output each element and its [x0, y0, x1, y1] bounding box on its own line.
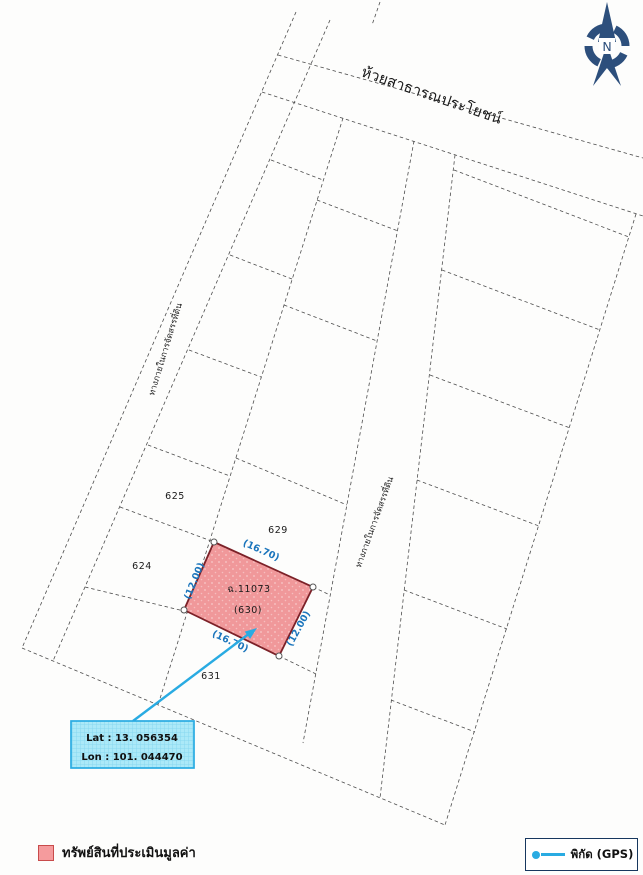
- compass-rose: N: [582, 2, 631, 86]
- corner-marker: [310, 584, 316, 590]
- gps-callout: Lat : 13. 056354 Lon : 101. 044470: [71, 624, 260, 768]
- compass-north-needle: [598, 2, 616, 42]
- parcel-line: [404, 590, 507, 629]
- property-legend-label: ทรัพย์สินที่ประเมินมูลค่า: [62, 842, 196, 863]
- parcel-line: [417, 480, 539, 526]
- parcel-line: [236, 458, 347, 505]
- parcel-line: [189, 350, 261, 377]
- parcel-line: [317, 200, 398, 231]
- gps-lon-value: Lon : 101. 044470: [81, 752, 182, 763]
- parcel-line: [284, 305, 377, 341]
- parcel-grid-lines: [85, 160, 629, 732]
- gps-lat-value: Lat : 13. 056354: [86, 733, 178, 744]
- parcel-label-629: 629: [268, 525, 288, 536]
- parcel-line: [271, 160, 323, 180]
- property-swatch: [38, 845, 54, 861]
- parcel-line: [442, 270, 600, 330]
- parcel-line: [279, 656, 316, 674]
- gps-legend-label: พิกัด (GPS): [571, 846, 634, 864]
- legend-gps-box: พิกัด (GPS): [525, 838, 638, 871]
- road-edges: [22, 2, 636, 825]
- parcel-label-631: 631: [201, 671, 221, 682]
- parcel-line: [454, 170, 629, 237]
- subject-deed-number: ฉ.11073: [227, 584, 270, 595]
- parcel-line: [230, 255, 292, 279]
- corner-marker: [211, 539, 217, 545]
- compass-north-label: N: [602, 39, 611, 54]
- right-road-east-edge: [380, 155, 455, 798]
- parcel-line: [148, 445, 230, 476]
- corner-marker: [276, 653, 282, 659]
- parcel-line: [120, 507, 214, 542]
- map-canvas: ห้วยสาธารณประโยชน์ ทางภายในการจัดสรรที่ด…: [0, 0, 643, 875]
- left-road-east-edge: [53, 20, 330, 661]
- parcel-label-624: 624: [132, 561, 152, 572]
- boundary-stub-above-stream: [372, 2, 380, 25]
- cadastral-map-page: ห้วยสาธารณประโยชน์ ทางภายในการจัดสรรที่ด…: [0, 0, 643, 875]
- gps-dot-icon: [532, 851, 540, 859]
- gps-leader-line: [133, 633, 250, 721]
- parcel-line: [430, 375, 570, 428]
- legend-property: ทรัพย์สินที่ประเมินมูลค่า: [38, 842, 196, 863]
- gps-line-icon: [541, 853, 565, 856]
- corner-marker: [181, 607, 187, 613]
- parcel-line: [85, 587, 188, 612]
- stream-lines: [262, 55, 643, 216]
- parcel-label-625: 625: [165, 491, 185, 502]
- stream-label: ห้วยสาธารณประโยชน์: [359, 63, 504, 128]
- east-boundary: [445, 214, 636, 825]
- right-road-label: ทางภายในการจัดสรรที่ดิน: [352, 475, 396, 570]
- subject-parcel: ฉ.11073 (630) (16.70) (16.70) (12.00) (1…: [181, 538, 316, 659]
- parcel-line: [391, 700, 475, 732]
- subject-lot-number: (630): [234, 605, 262, 616]
